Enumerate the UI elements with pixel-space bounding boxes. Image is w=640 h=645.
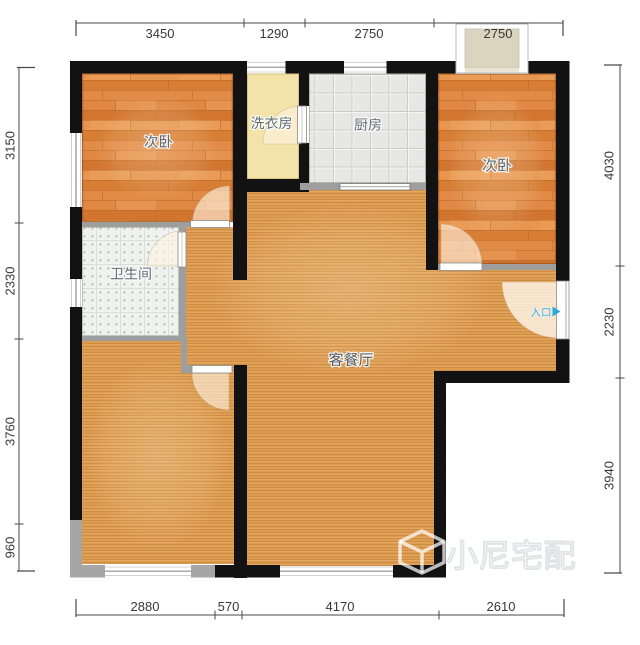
svg-text:2610: 2610 [487, 599, 516, 614]
svg-text:4170: 4170 [326, 599, 355, 614]
svg-text:2230: 2230 [602, 308, 617, 337]
svg-text:1290: 1290 [260, 26, 289, 41]
svg-text:3450: 3450 [146, 26, 175, 41]
svg-text:2880: 2880 [131, 599, 160, 614]
svg-text:3150: 3150 [3, 131, 18, 160]
svg-text:3760: 3760 [3, 417, 18, 446]
svg-text:4030: 4030 [602, 151, 617, 180]
svg-text:2330: 2330 [3, 267, 18, 296]
svg-text:570: 570 [218, 599, 240, 614]
svg-text:960: 960 [3, 537, 18, 559]
svg-text:3940: 3940 [602, 461, 617, 490]
svg-text:2750: 2750 [355, 26, 384, 41]
svg-text:2750: 2750 [484, 26, 513, 41]
